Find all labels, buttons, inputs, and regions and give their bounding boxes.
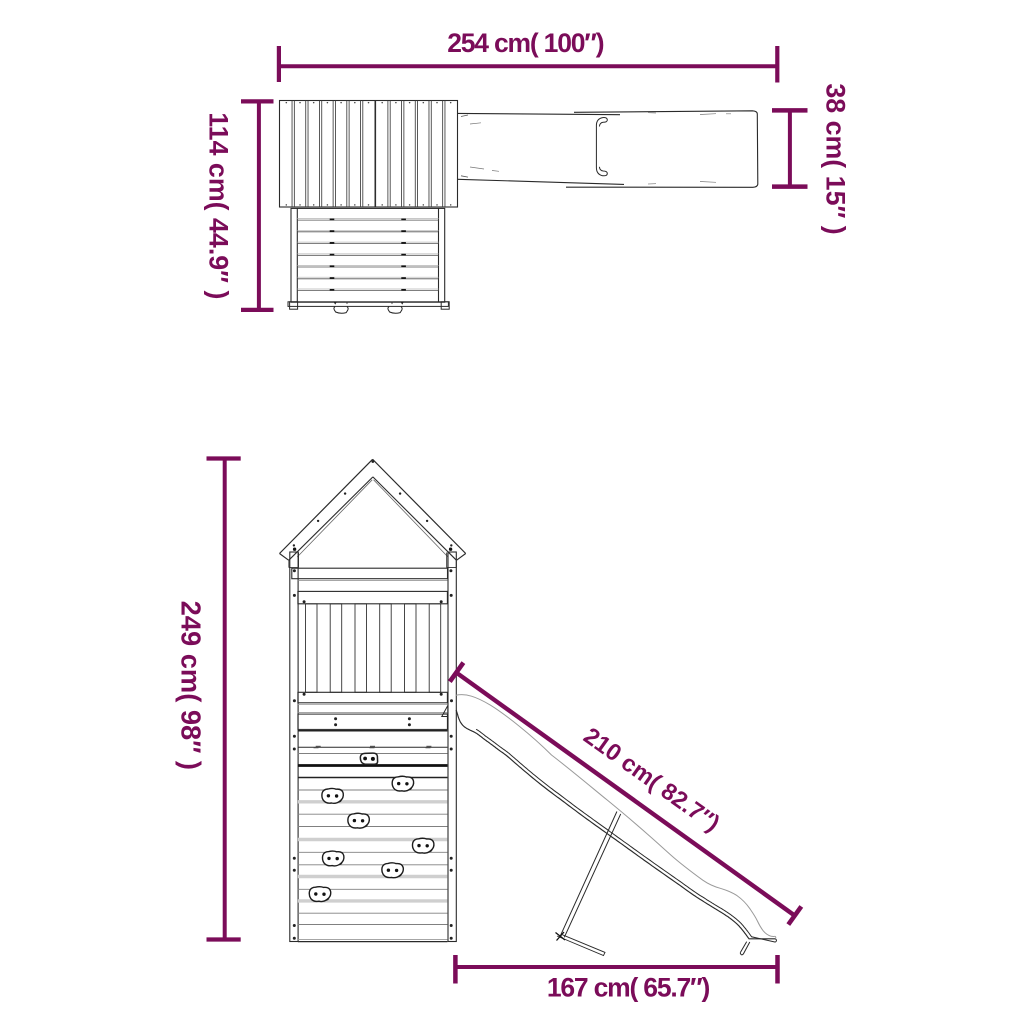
svg-text:249 cm( 98″ ): 249 cm( 98″ ) — [176, 601, 207, 770]
svg-text:254 cm( 100″): 254 cm( 100″) — [447, 28, 604, 58]
svg-text:210 cm( 82.7″): 210 cm( 82.7″) — [579, 723, 724, 837]
svg-text:167 cm( 65.7″): 167 cm( 65.7″) — [547, 972, 710, 1002]
svg-text:114 cm( 44.9″ ): 114 cm( 44.9″ ) — [204, 112, 234, 299]
svg-text:38 cm( 15″ ): 38 cm( 15″ ) — [821, 83, 851, 234]
